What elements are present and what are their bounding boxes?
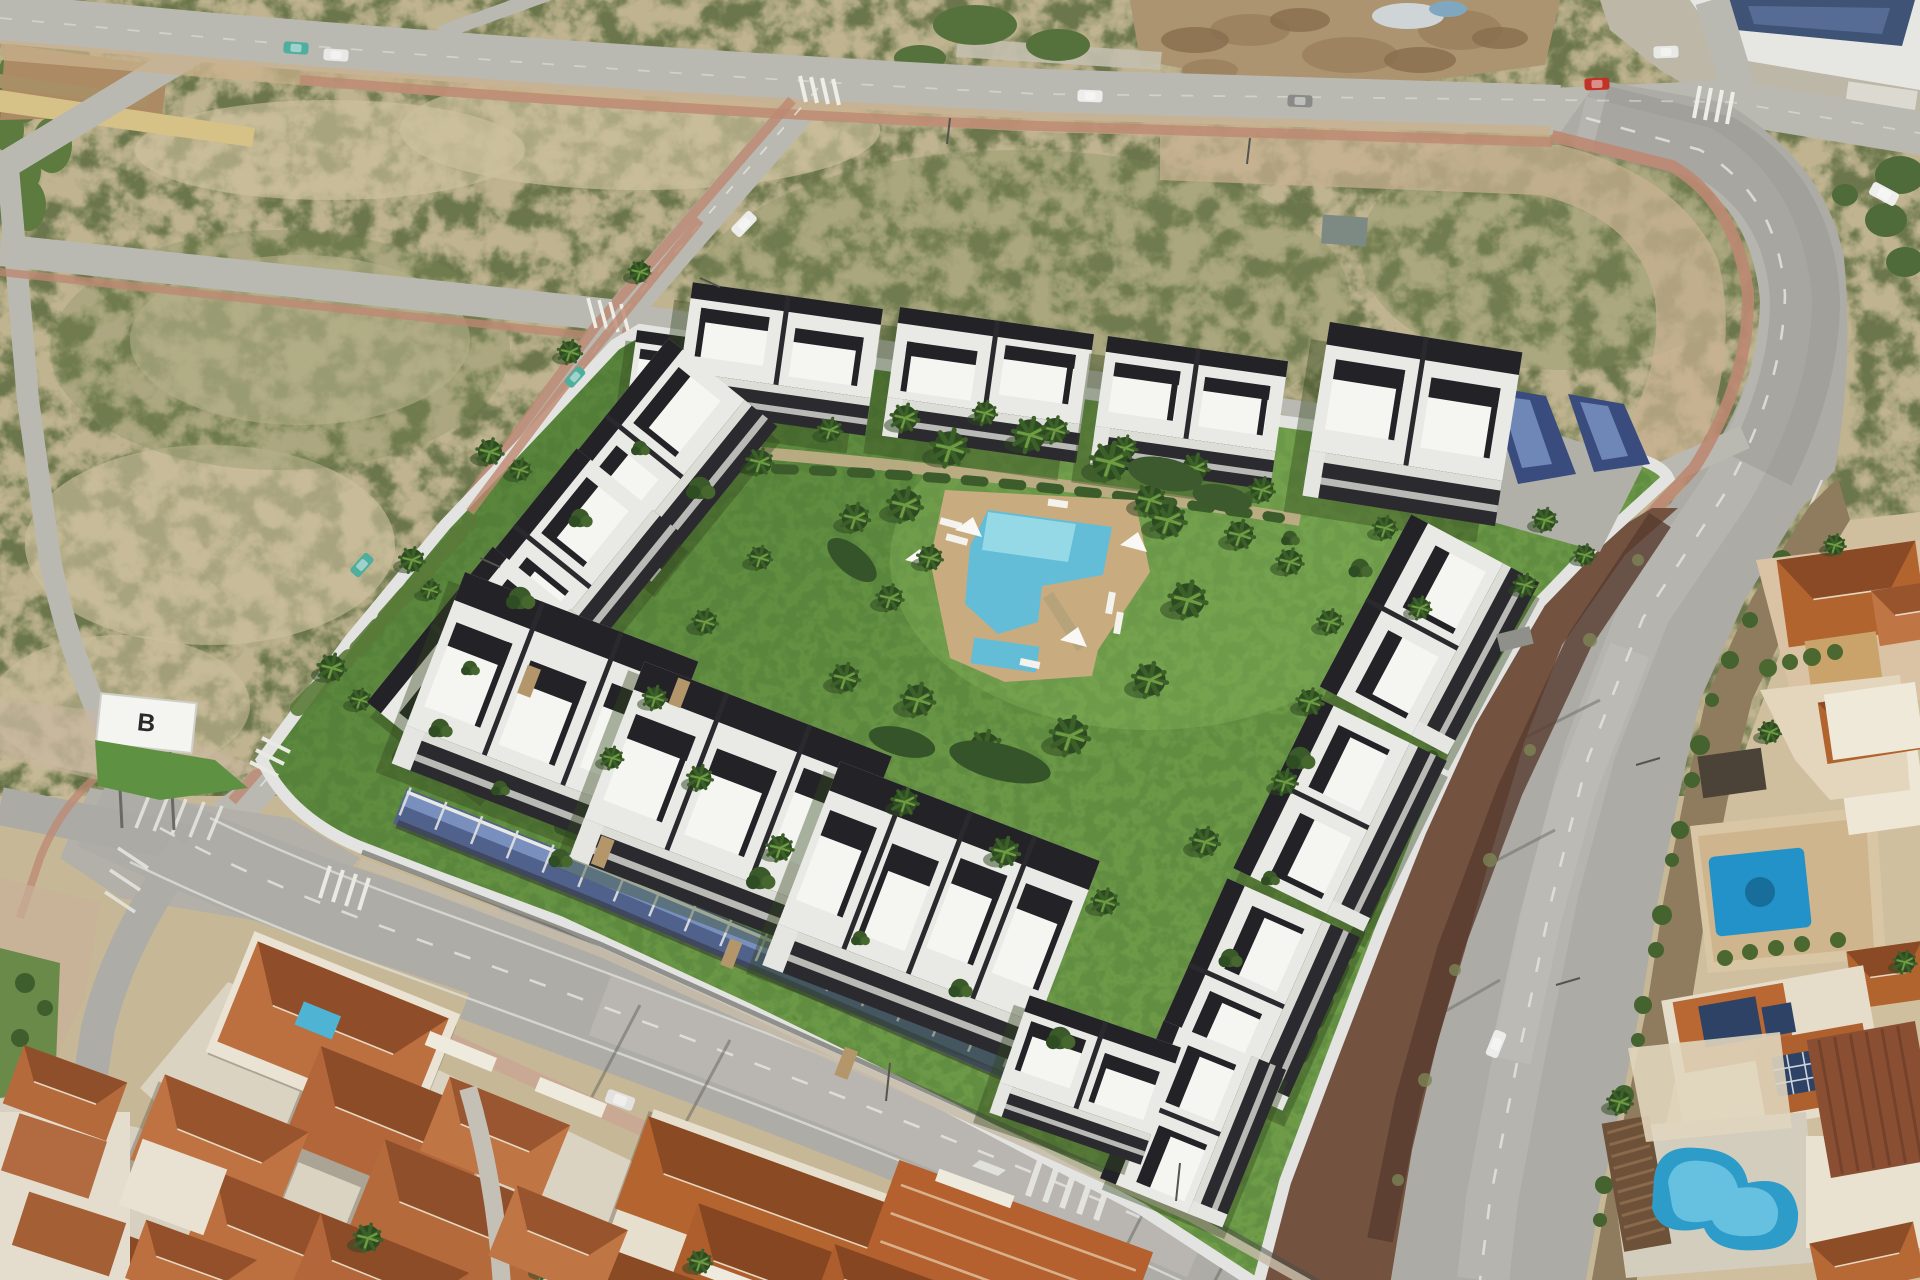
svg-text:B: B bbox=[136, 708, 157, 738]
